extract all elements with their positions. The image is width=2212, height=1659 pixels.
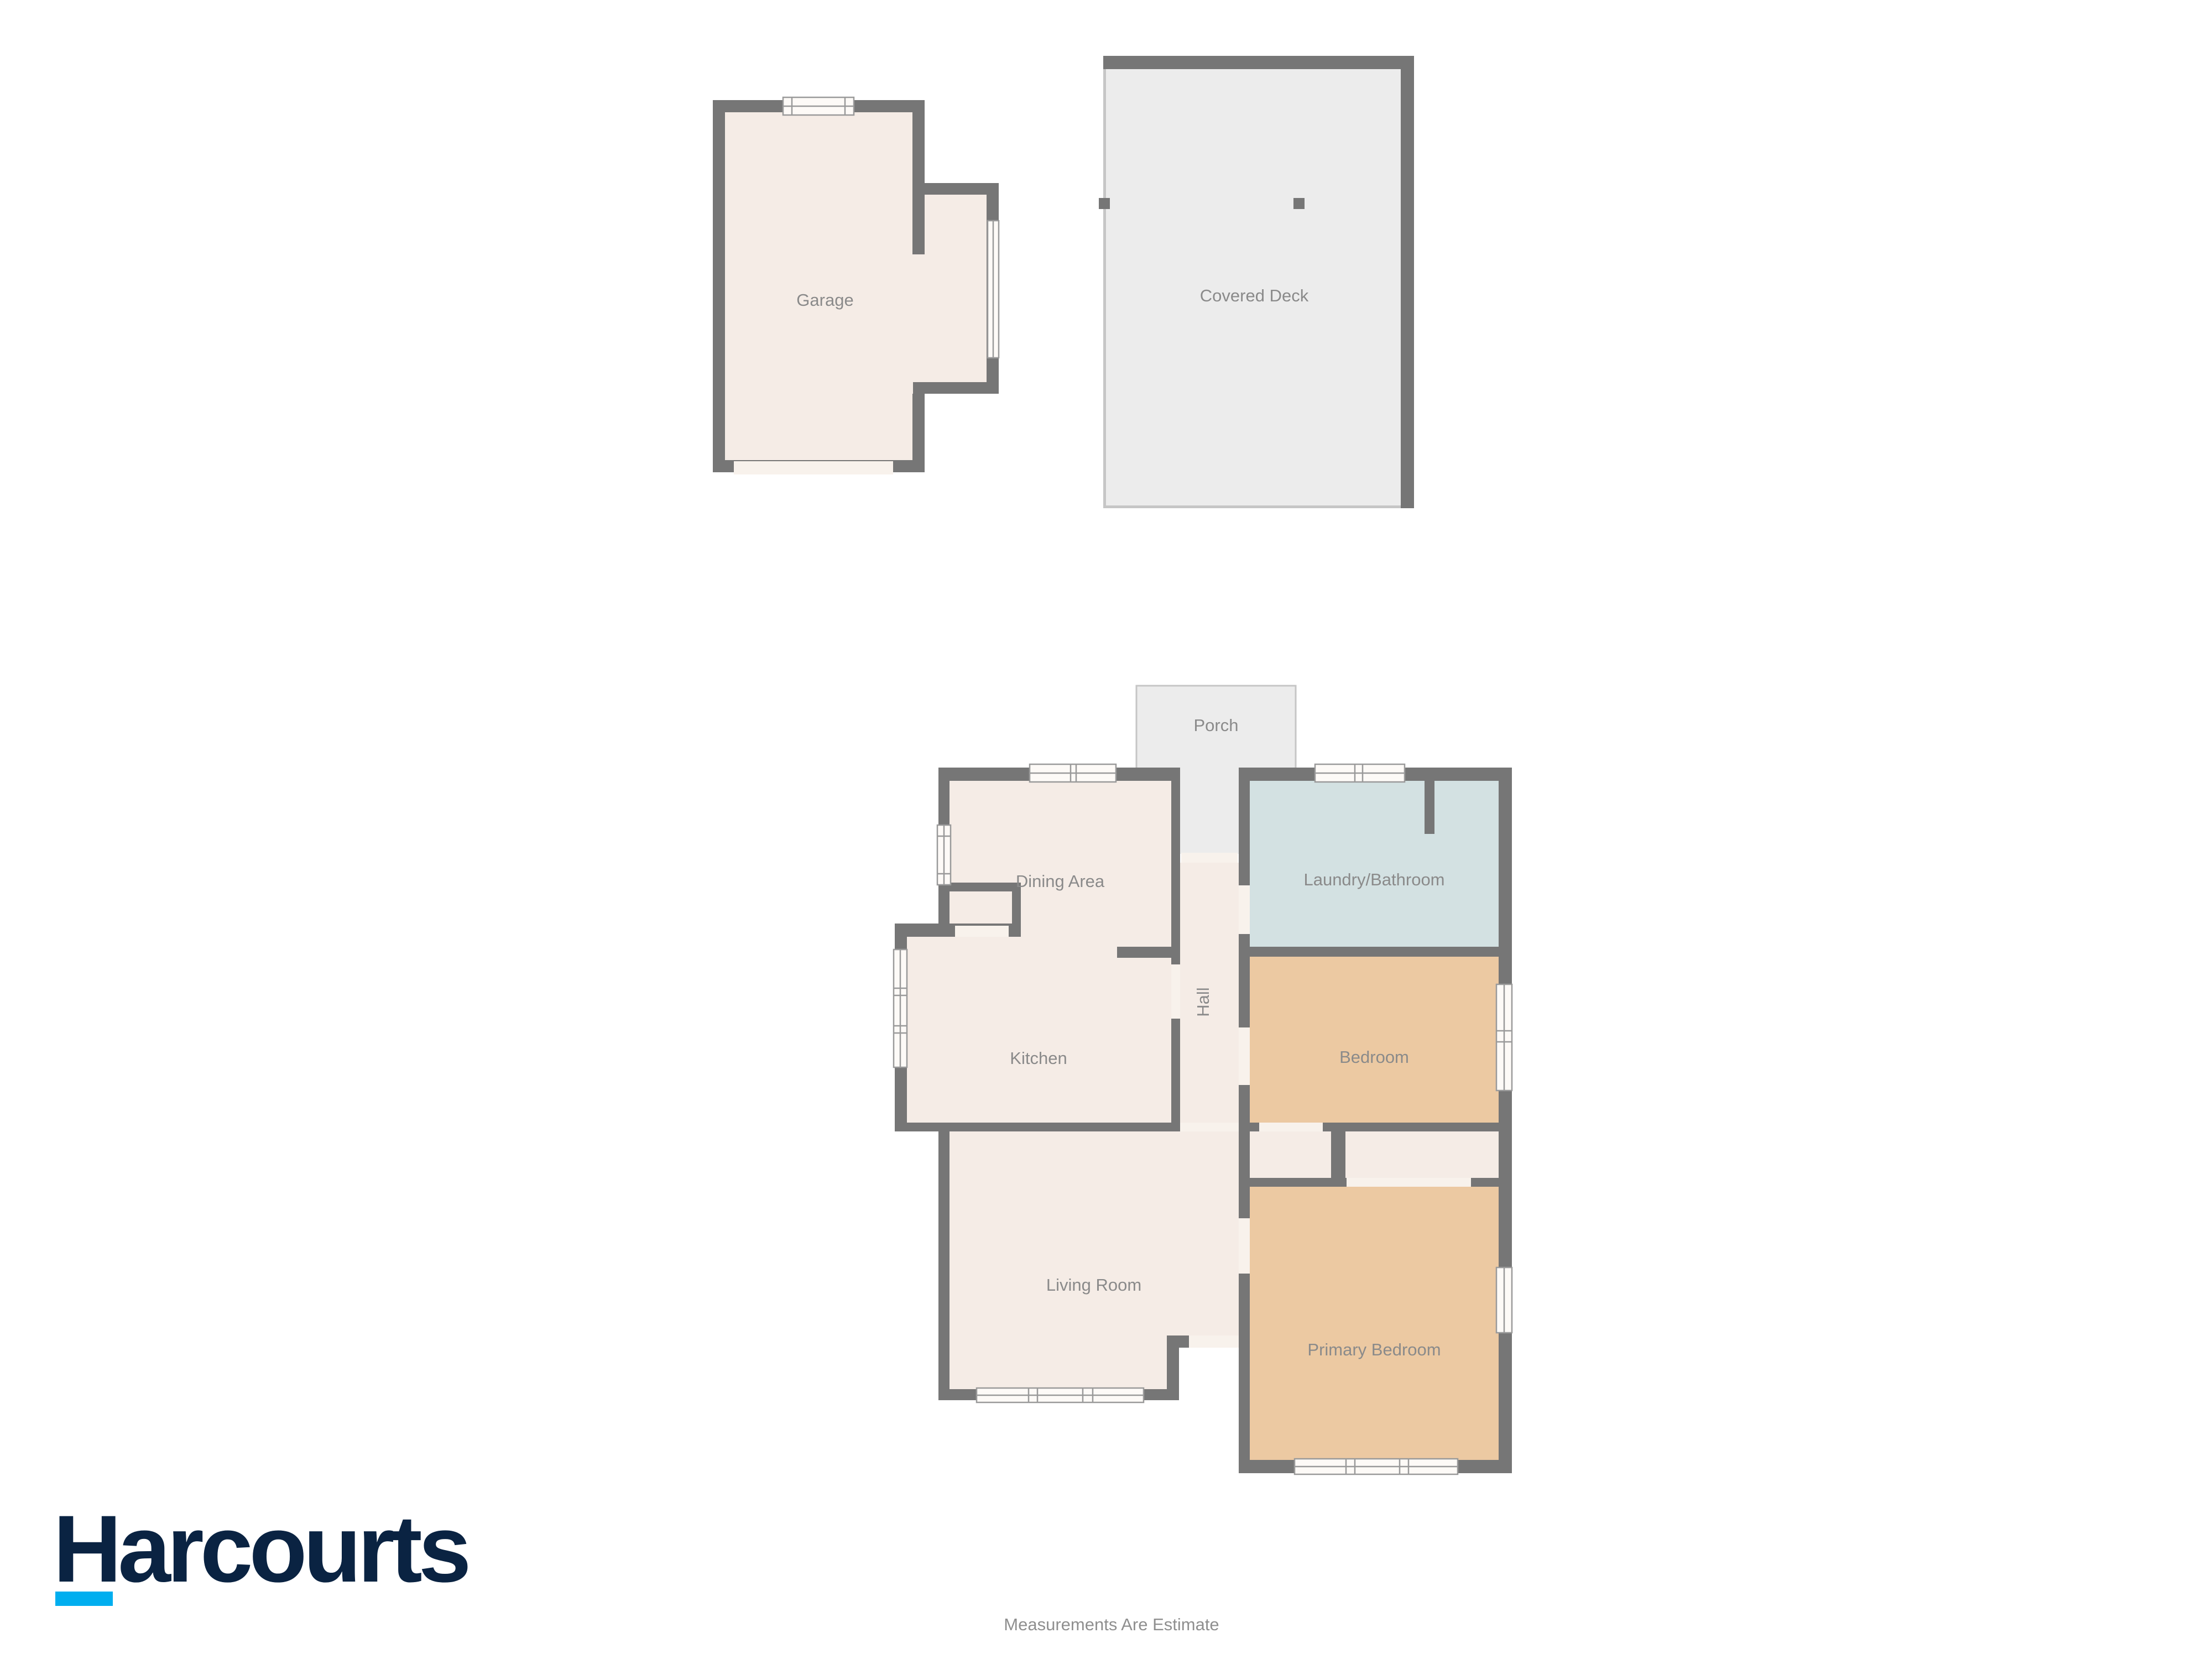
room-label-bedroom: Bedroom <box>1339 1047 1409 1067</box>
dining-left-window <box>937 825 951 885</box>
garage-door-opening <box>734 461 893 474</box>
primary-bedroom-floor <box>1250 1187 1499 1460</box>
room-label-living: Living Room <box>1046 1275 1141 1295</box>
harcourts-logo-underline <box>55 1592 113 1606</box>
closet-opening <box>1347 1178 1471 1187</box>
room-label-hall: Hall <box>1193 987 1213 1016</box>
floorplan-canvas: Covered Deck Garage Porch <box>0 0 2212 1659</box>
closet-1 <box>1250 1131 1331 1178</box>
primary-bottom-window <box>1295 1459 1458 1474</box>
living-room-floor <box>950 1131 1239 1335</box>
pantry-door <box>955 926 1009 937</box>
laundry-floor <box>1250 781 1499 947</box>
bedroom-closet-door <box>1259 1123 1323 1131</box>
room-label-primary: Primary Bedroom <box>1307 1340 1441 1359</box>
bedroom-right-window <box>1496 984 1512 1091</box>
kitchen-hall-door <box>1171 964 1180 1019</box>
disclaimer-text: Measurements Are Estimate <box>1004 1615 1219 1634</box>
hall-living-threshold <box>1180 1123 1239 1131</box>
primary-right-window <box>1496 1267 1512 1333</box>
deck-post <box>1099 198 1110 209</box>
deck-post <box>1293 198 1305 209</box>
room-label-covered-deck: Covered Deck <box>1200 286 1309 305</box>
entry-corridor <box>1180 766 1239 863</box>
closet-2 <box>1345 1131 1499 1178</box>
laundry-top-window <box>1315 764 1405 782</box>
dining-top-window <box>1030 764 1116 782</box>
front-door-threshold <box>1181 853 1238 863</box>
room-label-garage: Garage <box>796 290 853 310</box>
room-label-porch: Porch <box>1194 716 1239 735</box>
living-exterior-door <box>1189 1335 1239 1348</box>
room-label-laundry: Laundry/Bathroom <box>1303 870 1444 889</box>
porch: Porch <box>1136 686 1296 769</box>
garage-extension-window <box>988 221 999 358</box>
bedroom-door <box>1239 1027 1250 1085</box>
harcourts-logo-text: Harcourts <box>53 1496 468 1602</box>
laundry-door <box>1239 885 1250 934</box>
kitchen-left-window <box>894 950 907 1067</box>
covered-deck: Covered Deck <box>1099 56 1414 508</box>
garage: Garage <box>713 97 999 474</box>
bedroom-floor <box>1250 957 1499 1123</box>
room-label-kitchen: Kitchen <box>1010 1048 1067 1068</box>
branding: Harcourts <box>53 1496 468 1606</box>
room-label-dining: Dining Area <box>1016 872 1105 891</box>
garage-window <box>783 97 854 115</box>
living-bottom-window <box>977 1388 1144 1402</box>
primary-bedroom-door <box>1239 1218 1250 1274</box>
